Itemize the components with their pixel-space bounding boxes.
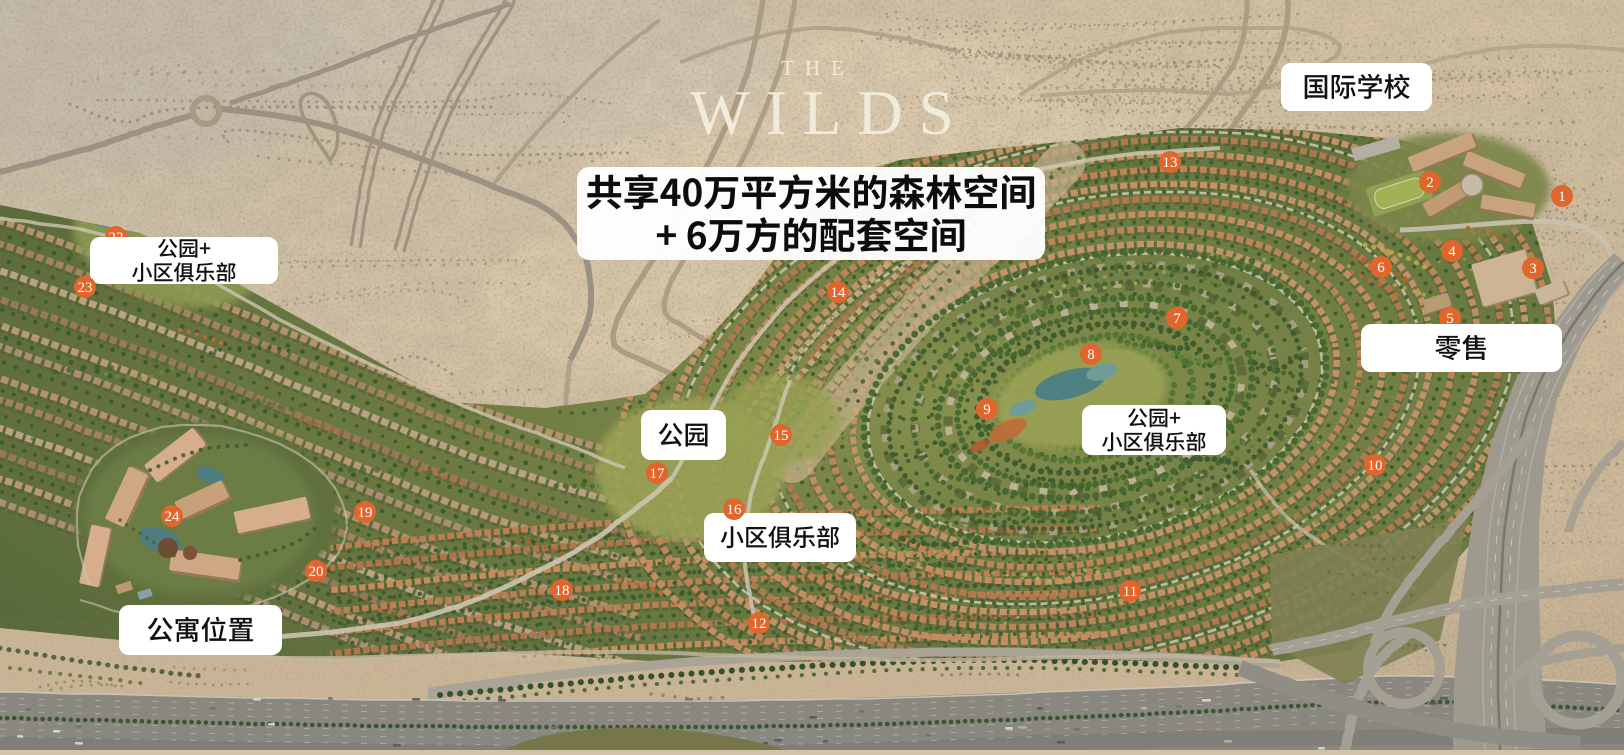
svg-text:15: 15: [774, 428, 789, 444]
svg-text:13: 13: [1163, 155, 1178, 171]
svg-text:20: 20: [309, 564, 324, 580]
svg-text:19: 19: [358, 505, 373, 521]
svg-text:17: 17: [650, 466, 666, 482]
svg-text:3: 3: [1529, 261, 1537, 277]
svg-text:2: 2: [1426, 175, 1434, 191]
svg-text:10: 10: [1368, 458, 1383, 474]
svg-text:7: 7: [1173, 311, 1181, 327]
svg-text:6: 6: [1377, 260, 1385, 276]
svg-text:23: 23: [78, 280, 93, 296]
svg-text:11: 11: [1123, 584, 1137, 600]
svg-text:24: 24: [165, 509, 181, 525]
svg-text:12: 12: [752, 616, 767, 632]
svg-text:14: 14: [831, 285, 847, 301]
svg-text:WILDS: WILDS: [690, 78, 969, 148]
svg-text:THE: THE: [781, 56, 855, 80]
svg-text:9: 9: [983, 402, 991, 418]
svg-text:18: 18: [555, 583, 570, 599]
svg-text:1: 1: [1558, 189, 1566, 205]
svg-text:8: 8: [1087, 347, 1095, 363]
svg-text:16: 16: [727, 502, 743, 518]
svg-text:4: 4: [1448, 244, 1456, 260]
